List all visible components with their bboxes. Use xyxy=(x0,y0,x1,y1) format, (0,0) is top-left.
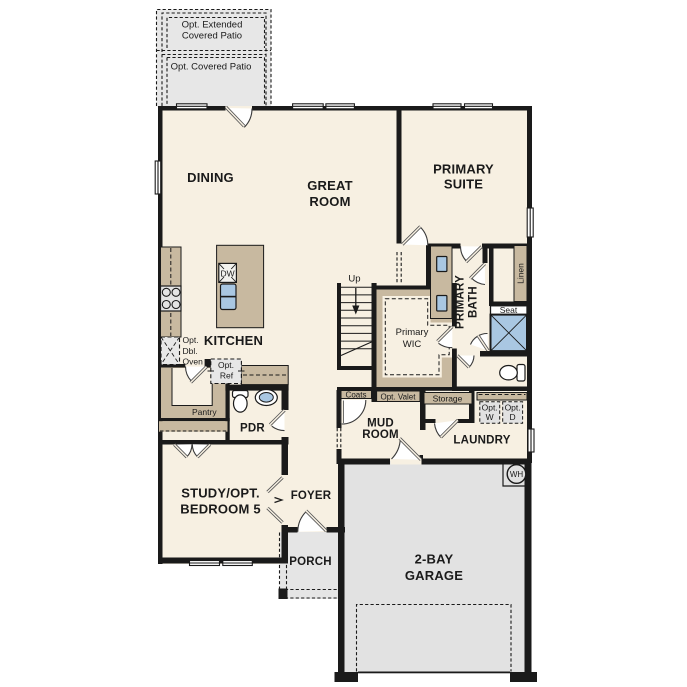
svg-text:Opt.: Opt. xyxy=(218,360,234,370)
svg-text:Opt. Covered Patio: Opt. Covered Patio xyxy=(171,62,252,73)
svg-text:Linen: Linen xyxy=(516,263,526,284)
svg-text:ROOM: ROOM xyxy=(309,194,350,209)
svg-text:Ref: Ref xyxy=(220,371,234,381)
svg-text:STUDY/OPT.: STUDY/OPT. xyxy=(181,486,260,501)
svg-text:MUD: MUD xyxy=(367,418,394,430)
svg-text:WIC: WIC xyxy=(403,339,422,350)
svg-text:PORCH: PORCH xyxy=(289,556,332,568)
svg-text:PRIMARY: PRIMARY xyxy=(455,275,467,329)
svg-text:Dbl.: Dbl. xyxy=(183,346,198,356)
svg-text:D: D xyxy=(510,412,516,422)
svg-text:WH: WH xyxy=(510,470,524,479)
svg-text:2-BAY: 2-BAY xyxy=(415,552,454,567)
svg-text:Covered Patio: Covered Patio xyxy=(182,31,242,42)
svg-text:Opt. Extended: Opt. Extended xyxy=(182,20,243,31)
svg-text:ROOM: ROOM xyxy=(362,429,399,441)
svg-text:Oven: Oven xyxy=(183,357,204,367)
svg-text:KITCHEN: KITCHEN xyxy=(204,333,263,348)
svg-text:SUITE: SUITE xyxy=(444,177,483,192)
svg-text:Up: Up xyxy=(348,274,360,285)
svg-text:Primary: Primary xyxy=(396,327,429,338)
svg-text:LAUNDRY: LAUNDRY xyxy=(453,435,510,447)
svg-text:BEDROOM 5: BEDROOM 5 xyxy=(180,502,261,517)
svg-text:FOYER: FOYER xyxy=(291,490,332,502)
svg-text:Opt. Valet: Opt. Valet xyxy=(381,393,417,402)
svg-text:Pantry: Pantry xyxy=(192,407,217,417)
svg-text:Seat: Seat xyxy=(500,305,518,315)
svg-text:DINING: DINING xyxy=(187,170,234,185)
svg-text:W: W xyxy=(486,412,494,422)
svg-text:DW: DW xyxy=(221,269,235,279)
svg-text:Opt.: Opt. xyxy=(183,335,199,345)
svg-text:PDR: PDR xyxy=(240,423,265,435)
svg-text:PRIMARY: PRIMARY xyxy=(433,162,494,177)
svg-text:Opt.: Opt. xyxy=(482,403,498,413)
svg-text:Coats: Coats xyxy=(346,391,367,400)
svg-text:BATH: BATH xyxy=(468,286,480,318)
svg-text:Opt.: Opt. xyxy=(505,403,521,413)
svg-text:Storage: Storage xyxy=(433,394,463,404)
svg-text:GREAT: GREAT xyxy=(307,178,353,193)
svg-text:GARAGE: GARAGE xyxy=(405,568,463,583)
